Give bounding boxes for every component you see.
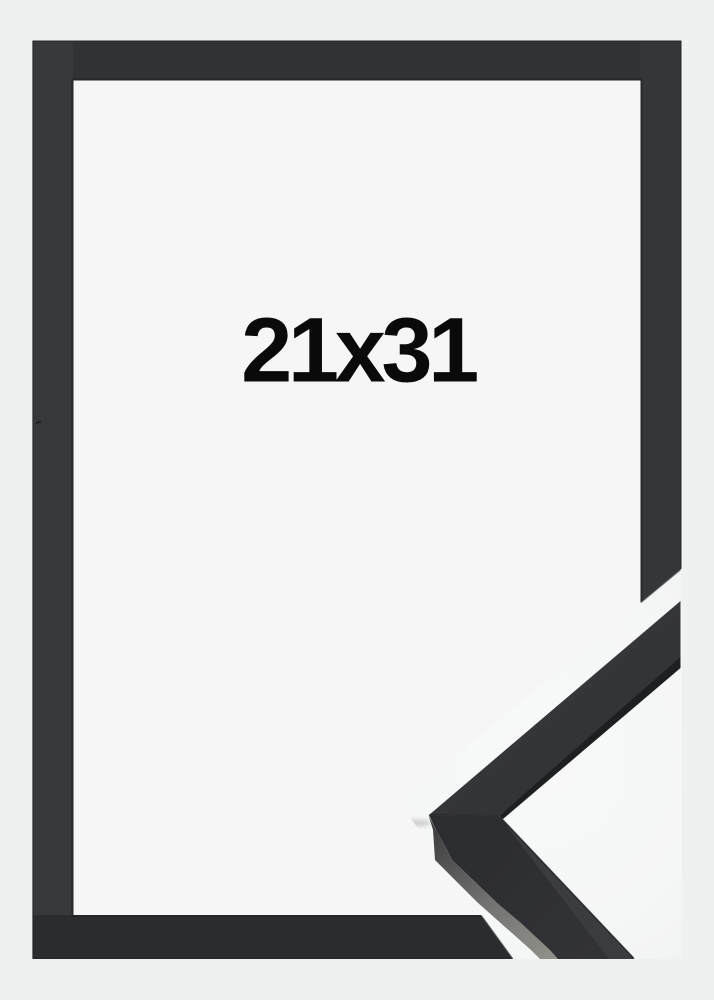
svg-text:21x31: 21x31 — [241, 300, 477, 402]
